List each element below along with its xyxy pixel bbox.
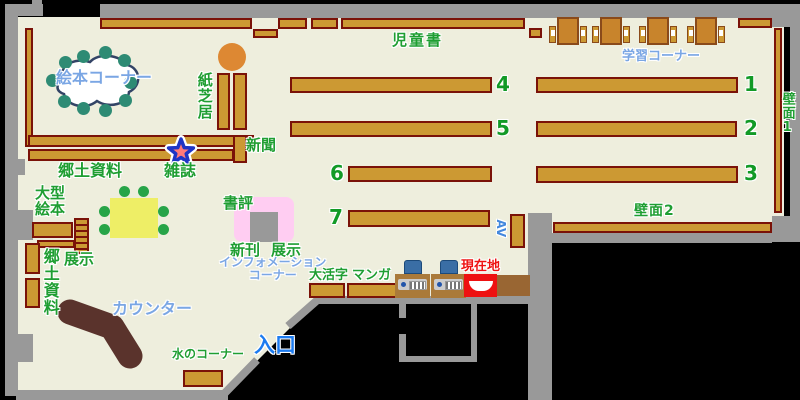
shelf-number-2: 2 [744,118,758,139]
label-large-print: 大活字 [309,269,348,283]
bookshelf-large-books-2 [37,240,75,248]
shelf-number-3: 3 [744,163,758,184]
study-desk [549,17,587,46]
label-water-corner: 水のコーナー [172,348,244,361]
chair-icon [99,46,112,59]
bookshelf-top-offset [253,29,278,38]
seat-dot [119,186,130,197]
bookshelf-local-left-1 [25,243,40,274]
current-location-marker [464,274,497,297]
label-display-left: 展示 [64,252,94,268]
bookshelf-left-wall [25,28,33,147]
label-local-materials-top: 郷土資料 [58,163,122,180]
bookshelf-3 [536,166,738,183]
reading-table [110,198,158,238]
label-line: コーナー [249,268,297,282]
monitor-icon [404,260,422,274]
label-magazine: 雑誌 [164,163,196,180]
chair-icon [58,95,71,108]
label-study-corner: 学習コーナー [622,50,700,64]
shelf-number-6: 6 [330,163,344,184]
bookshelf-large-books-1 [32,222,73,238]
label-wall-2: 壁面2 [634,204,675,219]
opac-terminal [395,274,430,298]
bookshelf-2 [536,121,737,137]
bookshelf-4 [290,77,492,93]
label-entrance: 入口 [254,334,296,356]
bookshelf-6 [348,166,492,182]
seat-dot [158,206,169,217]
chair-icon [77,50,90,63]
label-picture-book-corner: 絵本コーナー [56,70,152,87]
study-desk [687,17,725,46]
bookshelf-kamishibai-1 [217,73,230,130]
desk-top [647,17,669,45]
bookshelf-7 [348,210,490,227]
bookshelf-top-c [311,18,338,29]
bookshelf-top-right [738,18,772,28]
monitor-icon [440,260,458,274]
chair-icon [77,102,90,115]
seat-dot [99,206,110,217]
seat-dot [99,224,110,235]
return-box [497,275,530,296]
bookshelf-large-print [309,283,345,298]
bookshelf-manga [347,283,398,298]
label-wall-1: 壁面1 [780,92,794,136]
label-line: 絵本 [35,200,65,218]
library-floor-map: 絵本コーナー 紙芝居 新聞 雑誌 郷土資料 大型 絵本 展示 郷土資料 児童書 … [0,0,800,400]
shelf-number-4: 4 [496,74,510,95]
bookshelf-top-e [529,28,542,38]
chair-icon [119,94,132,107]
label-children-books: 児童書 [392,33,443,49]
label-large-picture-books: 大型 絵本 [35,186,65,218]
bookshelf-newspaper [233,135,247,163]
bookshelf-local-left-2 [25,278,40,308]
label-counter: カウンター [112,301,192,318]
bookshelf-water-corner [183,370,223,387]
bookshelf-1 [536,77,738,93]
label-local-materials-left: 郷土資料 [41,248,58,316]
chair-icon [118,54,131,67]
label-manga: マンガ [352,269,391,283]
shelf-number-1: 1 [744,74,758,95]
label-current-location: 現在地 [461,260,500,274]
opac-terminal [431,274,466,298]
bookshelf-kamishibai-2 [233,73,247,130]
display-stand [74,218,89,254]
shelf-number-5: 5 [496,118,510,139]
bookshelf-top-b [278,18,307,29]
label-newspaper: 新聞 [246,138,276,154]
label-av: AV [495,219,508,237]
bookshelf-5 [290,121,492,137]
label-book-review: 書評 [223,196,253,212]
round-table [218,43,246,71]
shelf-number-7: 7 [329,207,343,228]
desk-top [600,17,622,45]
seat-dot [158,224,169,235]
bookshelf-av [510,214,525,248]
label-kamishibai: 紙芝居 [196,72,212,120]
bookshelf-top-a [100,18,252,29]
bookshelf-local-materials-1 [28,135,254,147]
marker-bowl-icon [469,281,493,291]
bookshelf-wall2 [553,222,772,233]
chair-icon [99,104,112,117]
bookshelf-top-d [341,18,525,29]
desk-top [557,17,579,45]
study-desk [592,17,630,46]
seat-dot [138,186,149,197]
study-desk [639,17,677,46]
bookshelf-local-materials-2 [28,149,234,161]
book-review-board [250,212,278,242]
desk-top [695,17,717,45]
